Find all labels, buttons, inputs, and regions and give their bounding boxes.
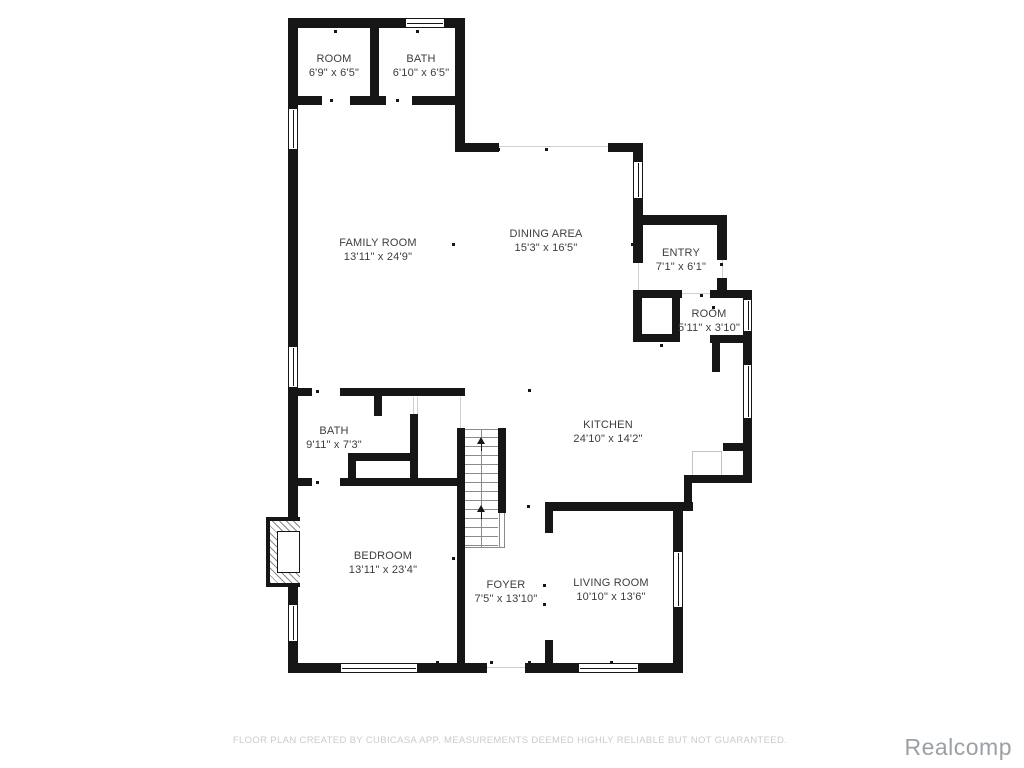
- room-label-living-room: LIVING ROOM10'10" x 13'6": [573, 576, 649, 604]
- stair-direction-arrow-icon: [477, 437, 485, 444]
- window-pane-line: [580, 668, 637, 669]
- stair-tread-line: [465, 545, 498, 546]
- stair-tread-line: [465, 473, 498, 474]
- door-tick: [748, 338, 751, 341]
- door-tick: [316, 481, 319, 484]
- door-tick: [294, 243, 297, 246]
- wall: [498, 428, 506, 513]
- room-dimensions: 6'10" x 6'5": [393, 66, 450, 80]
- wall: [712, 343, 720, 372]
- door-tick: [660, 344, 663, 347]
- room-dimensions: 6'9" x 6'5": [309, 66, 359, 80]
- wall: [288, 478, 312, 486]
- window: [405, 18, 445, 28]
- door-opening-line: [413, 397, 414, 414]
- wall: [340, 388, 465, 396]
- door-tick: [528, 661, 531, 664]
- door-opening-line: [460, 397, 461, 428]
- room-name: ROOM: [678, 307, 740, 321]
- room-dimensions: 13'11" x 24'9": [339, 250, 417, 264]
- room-label-room-top: ROOM6'9" x 6'5": [309, 52, 359, 80]
- window-pane-line: [678, 553, 679, 606]
- door-tick: [497, 148, 500, 151]
- window-pane-line: [638, 163, 639, 197]
- door-opening-line: [487, 667, 525, 668]
- window: [743, 299, 752, 332]
- door-tick: [436, 661, 439, 664]
- stair-arrow-stem: [481, 444, 482, 451]
- wall: [455, 18, 465, 152]
- stair-tread-line: [465, 464, 498, 465]
- wall: [288, 18, 298, 396]
- door-tick: [610, 661, 613, 664]
- door-tick: [700, 294, 703, 297]
- room-name: FAMILY ROOM: [339, 236, 417, 250]
- wall: [545, 502, 553, 533]
- window: [288, 108, 298, 150]
- stair-arrow-stem: [481, 512, 482, 519]
- door-tick: [720, 263, 723, 266]
- stair-tread-line: [465, 482, 498, 483]
- door-tick: [334, 30, 337, 33]
- room-label-bath-top: BATH6'10" x 6'5": [393, 52, 450, 80]
- wall: [633, 334, 680, 342]
- stair-tread-line: [465, 527, 498, 528]
- window-pane-line: [407, 23, 443, 24]
- wall: [350, 96, 386, 105]
- wall: [455, 143, 499, 152]
- floor-plan-canvas: ROOM6'9" x 6'5"BATH6'10" x 6'5"FAMILY RO…: [0, 0, 1024, 768]
- door-opening-line: [682, 293, 710, 294]
- window: [288, 604, 298, 642]
- stair-tread-line: [465, 500, 498, 501]
- window-pane-line: [293, 110, 294, 148]
- wall: [288, 396, 298, 522]
- window-pane-line: [293, 606, 294, 640]
- watermark-realcomp: Realcomp: [904, 734, 1012, 761]
- stair-tread-line: [465, 547, 505, 548]
- room-name: KITCHEN: [573, 418, 642, 432]
- wall: [457, 428, 465, 672]
- wall: [410, 414, 418, 484]
- door-tick: [543, 603, 546, 606]
- window-pane-line: [293, 348, 294, 386]
- door-opening-line: [638, 263, 639, 290]
- room-name: BEDROOM: [349, 549, 417, 563]
- room-label-foyer: FOYER7'5" x 13'10": [475, 578, 538, 606]
- room-name: BATH: [306, 424, 362, 438]
- window: [743, 364, 752, 419]
- stair-tread-line: [465, 536, 498, 537]
- wall: [684, 475, 752, 483]
- wall: [288, 96, 322, 105]
- room-label-dining-area: DINING AREA15'3" x 16'5": [509, 227, 582, 255]
- door-tick: [416, 30, 419, 33]
- room-dimensions: 9'11" x 7'3": [306, 438, 362, 452]
- window: [578, 663, 639, 673]
- door-tick: [545, 148, 548, 151]
- room-dimensions: 7'1" x 6'1": [656, 260, 706, 274]
- room-dimensions: 15'3" x 16'5": [509, 241, 582, 255]
- room-dimensions: 13'11" x 23'4": [349, 563, 417, 577]
- wall: [723, 443, 743, 451]
- door-tick: [527, 505, 530, 508]
- window-pane-line: [342, 668, 416, 669]
- door-tick: [316, 390, 319, 393]
- disclaimer-text: FLOOR PLAN CREATED BY CUBICASA APP. MEAS…: [0, 735, 1020, 746]
- fireplace-firebox: [277, 531, 300, 573]
- wall: [370, 24, 379, 100]
- room-label-room-side: ROOM5'11" x 3'10": [678, 307, 740, 335]
- wall: [717, 215, 727, 260]
- room-name: ENTRY: [656, 246, 706, 260]
- window: [633, 161, 643, 199]
- room-label-kitchen: KITCHEN24'10" x 14'2": [573, 418, 642, 446]
- room-name: FOYER: [475, 578, 538, 592]
- room-dimensions: 10'10" x 13'6": [573, 590, 649, 604]
- room-name: BATH: [393, 52, 450, 66]
- window-pane-line: [748, 301, 749, 330]
- room-name: DINING AREA: [509, 227, 582, 241]
- window-pane-line: [748, 366, 749, 417]
- door-tick: [452, 243, 455, 246]
- room-dimensions: 24'10" x 14'2": [573, 432, 642, 446]
- door-opening-line: [499, 146, 608, 147]
- stair-tread-line: [465, 455, 498, 456]
- wall: [545, 502, 693, 511]
- room-label-bedroom: BEDROOM13'11" x 23'4": [349, 549, 417, 577]
- stair-tread-line: [504, 513, 505, 548]
- wall: [633, 225, 643, 263]
- wall: [340, 478, 457, 486]
- door-tick: [490, 661, 493, 664]
- wall: [348, 453, 417, 461]
- room-label-family-room: FAMILY ROOM13'11" x 24'9": [339, 236, 417, 264]
- window: [288, 346, 298, 388]
- stair-direction-arrow-icon: [477, 505, 485, 512]
- door-tick: [452, 557, 455, 560]
- room-dimensions: 7'5" x 13'10": [475, 592, 538, 606]
- door-tick: [528, 389, 531, 392]
- door-opening-line: [417, 397, 418, 414]
- door-tick: [543, 584, 546, 587]
- window: [673, 551, 683, 608]
- room-dimensions: 5'11" x 3'10": [678, 321, 740, 335]
- door-tick: [330, 99, 333, 102]
- room-name: LIVING ROOM: [573, 576, 649, 590]
- door-tick: [631, 243, 634, 246]
- window: [340, 663, 418, 673]
- room-name: ROOM: [309, 52, 359, 66]
- wall: [288, 388, 312, 396]
- room-label-entry: ENTRY7'1" x 6'1": [656, 246, 706, 274]
- door-tick: [678, 217, 681, 220]
- door-tick: [396, 99, 399, 102]
- stair-tread-line: [465, 491, 498, 492]
- room-label-bath-main: BATH9'11" x 7'3": [306, 424, 362, 452]
- stair-tread-line: [499, 513, 500, 548]
- wall: [374, 396, 382, 416]
